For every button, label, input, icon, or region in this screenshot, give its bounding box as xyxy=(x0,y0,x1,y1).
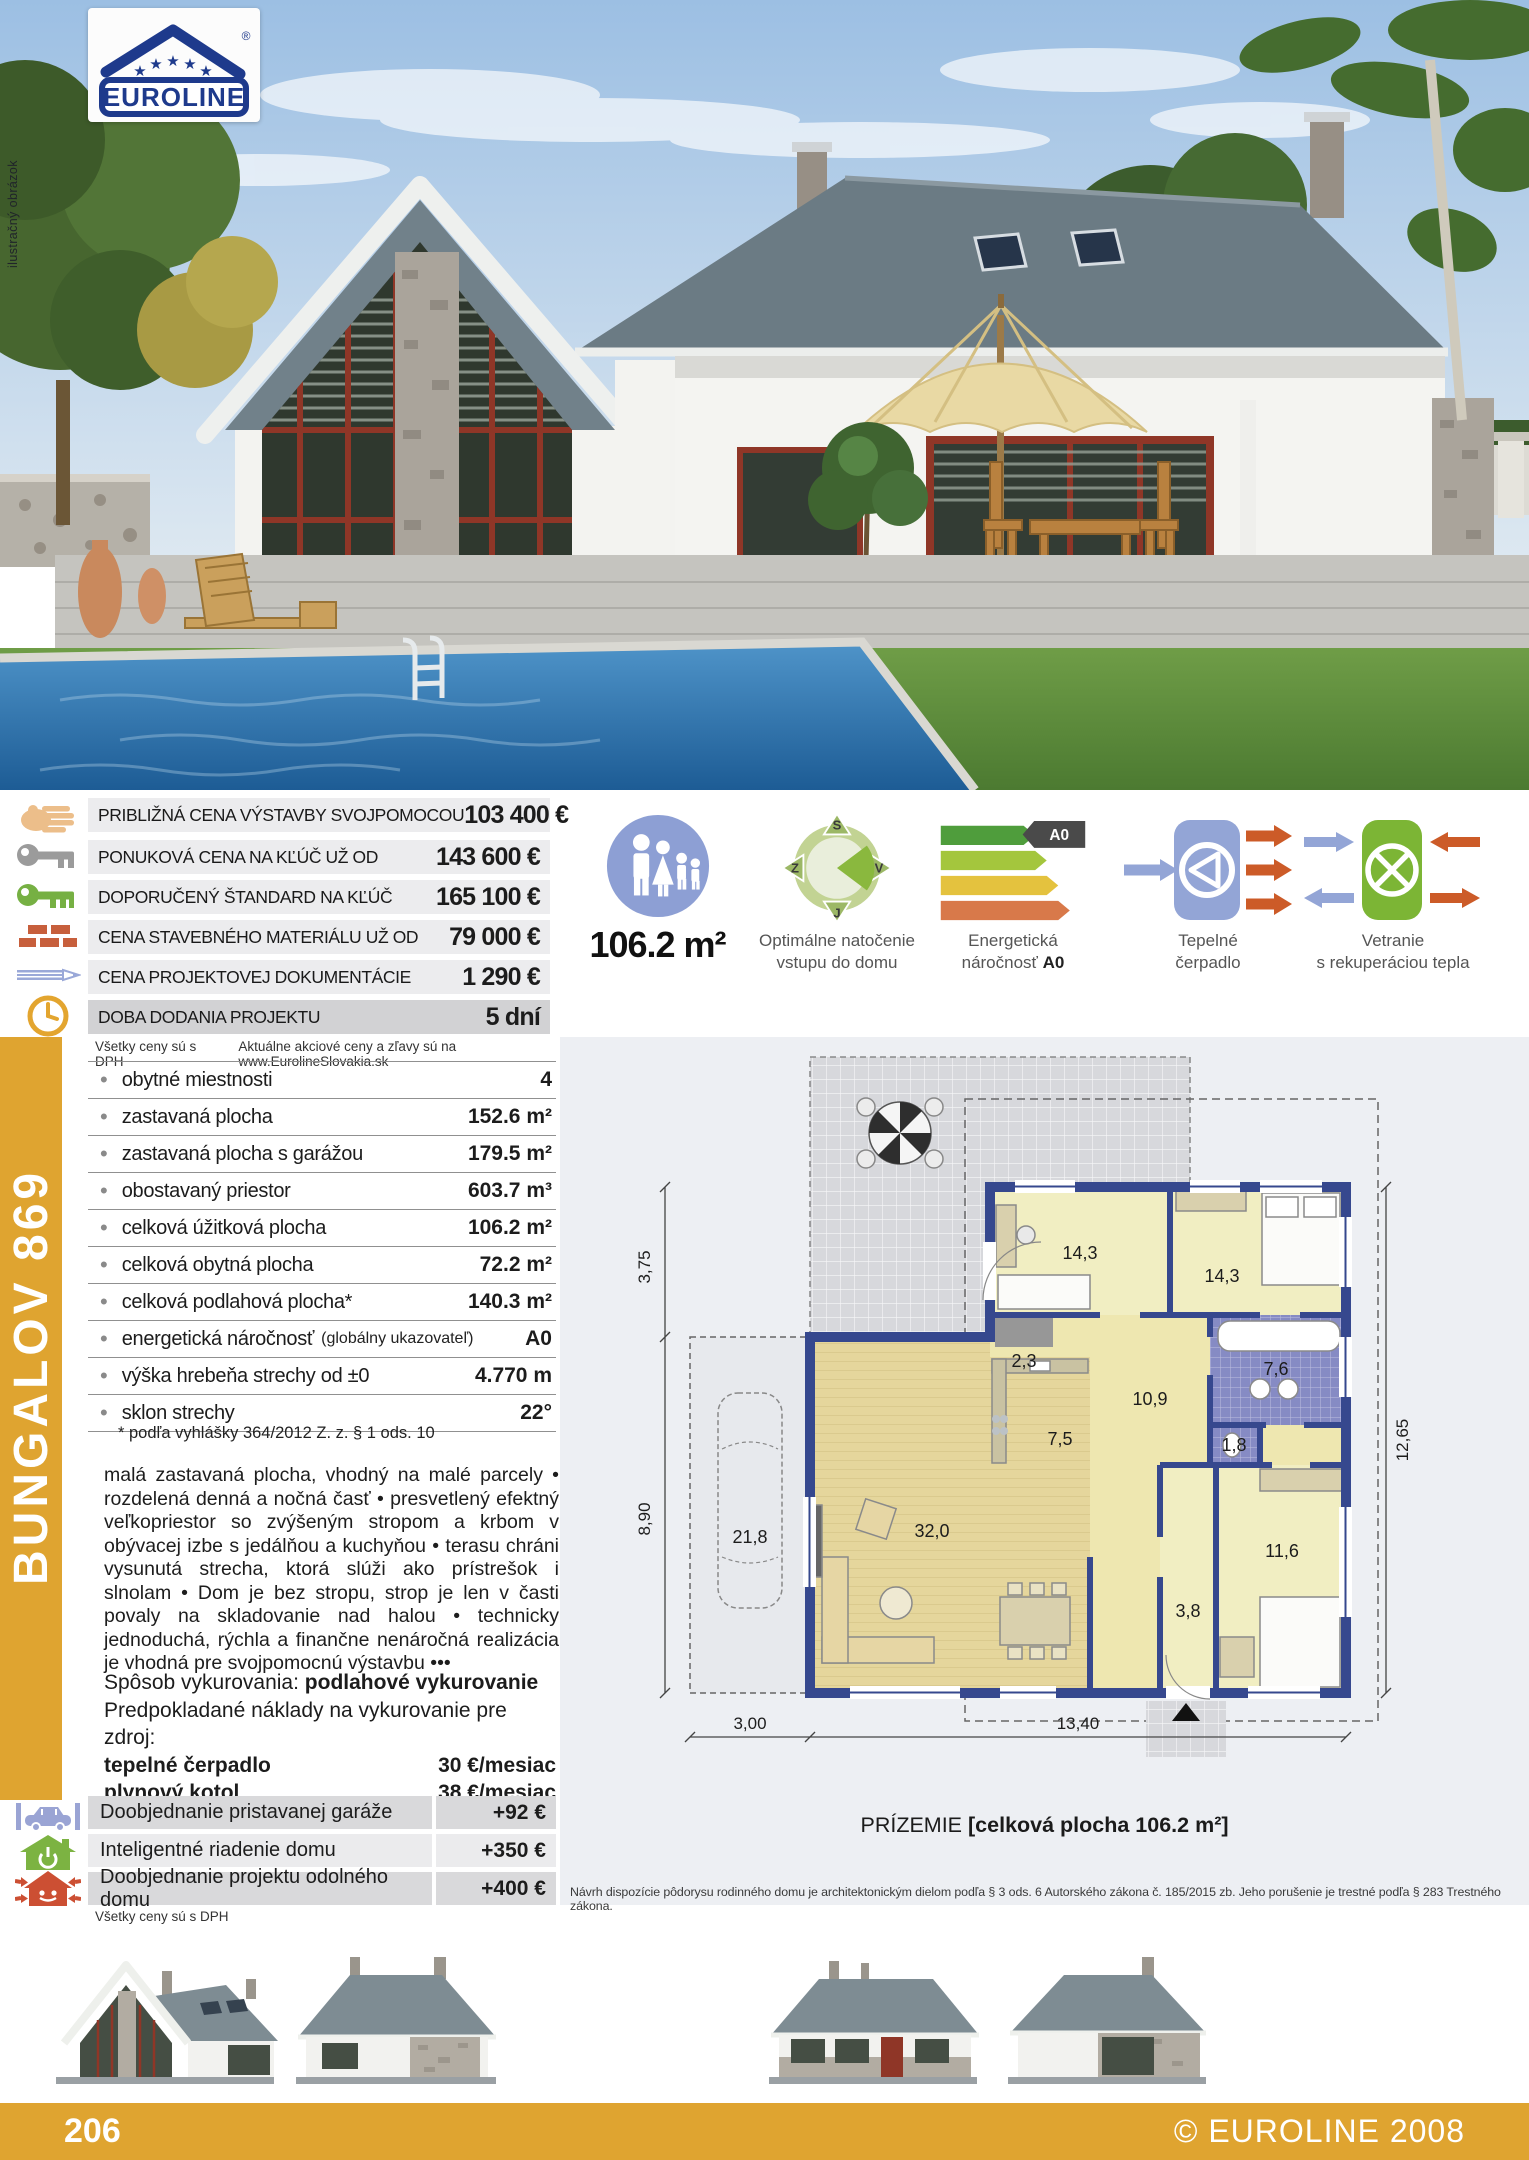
logo-registered-mark: ® xyxy=(242,29,251,43)
heatpump-label-2: čerpadlo xyxy=(1118,952,1298,974)
price-row: PONUKOVÁ CENA NA KĽÚČ UŽ OD 143 600 € xyxy=(88,840,550,874)
dim-bottom-left: 3,00 xyxy=(733,1714,766,1733)
price-label: CENA STAVEBNÉHO MATERIÁLU UŽ OD xyxy=(98,927,418,948)
dim-bottom-right: 13,40 xyxy=(1057,1714,1100,1733)
addon-label: Inteligentné riadenie domu xyxy=(88,1834,432,1867)
price-label: CENA PROJEKTOVEJ DOKUMENTÁCIE xyxy=(98,967,411,988)
energy-label-1: Energetická xyxy=(928,930,1098,952)
room-label: 7,5 xyxy=(1047,1429,1072,1449)
compass-s: J xyxy=(833,905,840,920)
caption-prefix: PRÍZEMIE xyxy=(860,1813,962,1837)
spec-label: zastavaná plocha s garážou xyxy=(122,1143,363,1166)
spec-value: 179.5 m² xyxy=(468,1142,556,1166)
spec-value: 4 xyxy=(540,1068,556,1092)
addon-note: Všetky ceny sú s DPH xyxy=(95,1909,229,1924)
room-label: 7,6 xyxy=(1263,1359,1288,1379)
heating-method: podlahové vykurovanie xyxy=(305,1671,538,1694)
addon-label: Doobjednanie pristavanej garáže xyxy=(88,1796,432,1829)
spec-row: •celková obytná plocha72.2 m² xyxy=(88,1247,556,1284)
logo-stars-icon: ★★★★★ xyxy=(133,53,212,80)
compass-icon: S V J Z xyxy=(781,812,893,924)
price-row-delivery: DOBA DODANIA PROJEKTU 5 dní xyxy=(88,1000,550,1034)
key-green-icon xyxy=(12,882,84,912)
spec-label: zastavaná plocha xyxy=(122,1106,273,1129)
copyright-disclaimer: Návrh dispozície pôdorysu rodinného domu… xyxy=(570,1885,1519,1913)
spec-value: 603.7 m³ xyxy=(468,1179,556,1203)
heating-block: Spôsob vykurovania: podlahové vykurovani… xyxy=(104,1669,556,1807)
price-value: 79 000 € xyxy=(449,923,540,952)
heating-prefix: Spôsob vykurovania: xyxy=(104,1671,299,1694)
family-icon xyxy=(604,812,712,920)
room-label: 10,9 xyxy=(1132,1389,1167,1409)
feature-area: 106.2 m² xyxy=(575,812,740,966)
pencil-icon xyxy=(12,963,84,987)
feature-ventilation: Vetranie s rekuperáciou tepla xyxy=(1298,820,1488,974)
floorplan-drawing: 3,75 8,90 12,65 3,00 13,40 14,3 14,3 2,3… xyxy=(560,1037,1529,1797)
heat-pump-icon xyxy=(1118,820,1298,924)
spec-value: 4.770 m xyxy=(475,1364,556,1388)
spec-label: sklon strechy xyxy=(122,1402,235,1425)
room-label: 32,0 xyxy=(914,1521,949,1541)
orientation-label-1: Optimálne natočenie xyxy=(752,930,922,952)
hand-icon xyxy=(12,799,84,833)
energy-label-class: A0 xyxy=(1043,953,1065,972)
spec-value: A0 xyxy=(525,1327,556,1351)
svg-text:★: ★ xyxy=(183,56,196,73)
spec-row: •celková úžitková plocha106.2 m² xyxy=(88,1210,556,1247)
spec-value: 152.6 m² xyxy=(468,1105,556,1129)
compass-n: S xyxy=(833,818,842,833)
addon-label: Doobjednanie projektu odolného domu xyxy=(88,1872,432,1905)
catalog-page: ★★★★★ ® EUROLINE ilustračný obrázok PRIB… xyxy=(0,0,1529,2160)
copyright: © EUROLINE 2008 xyxy=(1174,2113,1465,2150)
ventilation-label-2: s rekuperáciou tepla xyxy=(1298,952,1488,974)
price-label: DOPORUČENÝ ŠTANDARD NA KĽÚČ xyxy=(98,887,392,908)
price-value: 143 600 € xyxy=(436,843,540,872)
spec-row: •energetická náročnosť(globálny ukazovat… xyxy=(88,1321,556,1358)
addon-row: Inteligentné riadenie domu +350 € xyxy=(88,1834,556,1867)
caption-area: [celková plocha 106.2 m²] xyxy=(968,1813,1229,1837)
energy-class-icon: A0 xyxy=(937,820,1089,924)
price-label: PONUKOVÁ CENA NA KĽÚČ UŽ OD xyxy=(98,847,378,868)
room-label: 1,8 xyxy=(1221,1435,1246,1455)
spec-row: •zastavaná plocha s garážou179.5 m² xyxy=(88,1136,556,1173)
spec-label: celková úžitková plocha xyxy=(122,1217,326,1240)
euroline-logo: ★★★★★ ® EUROLINE xyxy=(88,8,260,122)
spec-row: •obostavaný priestor603.7 m³ xyxy=(88,1173,556,1210)
addon-row: Doobjednanie projektu odolného domu +400… xyxy=(88,1872,556,1905)
price-value: 5 dní xyxy=(486,1003,540,1032)
elevation-front xyxy=(50,1945,280,2095)
garage-car-icon xyxy=(12,1799,84,1833)
feature-energy: A0 Energetická náročnosť A0 xyxy=(928,820,1098,974)
spec-value: 22° xyxy=(520,1401,556,1425)
spec-label: celková podlahová plocha* xyxy=(122,1291,352,1314)
usable-area-value: 106.2 m² xyxy=(575,924,740,966)
elevation-rear xyxy=(292,1945,502,2095)
spec-label: výška hrebeňa strechy od ±0 xyxy=(122,1365,369,1388)
room-label: 14,3 xyxy=(1204,1266,1239,1286)
footer-bar: 206 © EUROLINE 2008 xyxy=(0,2103,1529,2160)
price-row: PRIBLIŽNÁ CENA VÝSTAVBY SVOJPOMOCOU 103 … xyxy=(88,798,550,832)
feature-heatpump: Tepelné čerpadlo xyxy=(1118,820,1298,974)
heat-recovery-icon xyxy=(1298,820,1488,924)
energy-label-2: náročnosť xyxy=(962,953,1038,972)
ventilation-label-1: Vetranie xyxy=(1298,930,1488,952)
room-label: 3,8 xyxy=(1175,1601,1200,1621)
heating-row: tepelné čerpadlo30 €/mesiac xyxy=(104,1752,556,1780)
price-value: 103 400 € xyxy=(464,801,568,830)
feature-orientation: S V J Z Optimálne natočenie vstupu do do… xyxy=(752,812,922,974)
spec-label: celková obytná plocha xyxy=(122,1254,314,1277)
floorplan-caption: PRÍZEMIE [celková plocha 106.2 m²] xyxy=(560,1813,1529,1838)
room-label: 21,8 xyxy=(732,1527,767,1547)
price-value: 1 290 € xyxy=(462,963,540,992)
spec-label: obytné miestnosti xyxy=(122,1069,273,1092)
spec-label: energetická náročnosť xyxy=(122,1328,314,1351)
spec-row: •výška hrebeňa strechy od ±04.770 m xyxy=(88,1358,556,1395)
elevation-side-entry xyxy=(765,1945,985,2095)
addon-price: +350 € xyxy=(436,1834,556,1867)
heating-intro: Predpokladané náklady na vykurovanie pre… xyxy=(104,1697,556,1752)
spec-value: 72.2 m² xyxy=(480,1253,556,1277)
svg-text:★: ★ xyxy=(166,53,179,70)
spec-list: •obytné miestnosti4 •zastavaná plocha152… xyxy=(88,1061,556,1432)
clock-icon xyxy=(12,994,84,1038)
spec-value: 140.3 m² xyxy=(468,1290,556,1314)
model-name: BUNGALOV 869 xyxy=(2,1085,62,1585)
addon-price: +400 € xyxy=(436,1872,556,1905)
resilient-house-icon xyxy=(12,1869,84,1907)
addon-price: +92 € xyxy=(436,1796,556,1829)
elevation-side-garage xyxy=(1002,1945,1214,2095)
page-number: 206 xyxy=(64,2112,121,2151)
spec-footnote: * podľa vyhlášky 364/2012 Z. z. § 1 ods.… xyxy=(118,1424,435,1443)
spec-value: 106.2 m² xyxy=(468,1216,556,1240)
dim-left-top: 3,75 xyxy=(635,1250,654,1283)
compass-e: V xyxy=(875,861,884,876)
spec-row: •zastavaná plocha152.6 m² xyxy=(88,1099,556,1136)
photo-watermark: ilustračný obrázok xyxy=(6,136,23,268)
key-gray-icon xyxy=(12,842,84,872)
house-photo: ★★★★★ ® EUROLINE ilustračný obrázok xyxy=(0,0,1529,790)
room-label: 2,3 xyxy=(1011,1351,1036,1371)
price-row: DOPORUČENÝ ŠTANDARD NA KĽÚČ 165 100 € xyxy=(88,880,550,914)
dim-left-bottom: 8,90 xyxy=(635,1502,654,1535)
spec-row: •celková podlahová plocha*140.3 m² xyxy=(88,1284,556,1321)
dim-right: 12,65 xyxy=(1393,1419,1412,1462)
addon-row: Doobjednanie pristavanej garáže +92 € xyxy=(88,1796,556,1829)
compass-w: Z xyxy=(791,861,799,876)
spec-label: obostavaný priestor xyxy=(122,1180,291,1203)
room-label: 14,3 xyxy=(1062,1243,1097,1263)
price-label: DOBA DODANIA PROJEKTU xyxy=(98,1007,320,1028)
description: malá zastavaná plocha, vhodný na malé pa… xyxy=(104,1464,559,1676)
price-row: CENA STAVEBNÉHO MATERIÁLU UŽ OD 79 000 € xyxy=(88,920,550,954)
price-row: CENA PROJEKTOVEJ DOKUMENTÁCIE 1 290 € xyxy=(88,960,550,994)
orientation-label-2: vstupu do domu xyxy=(752,952,922,974)
energy-badge: A0 xyxy=(1049,827,1069,844)
bricks-icon xyxy=(12,923,84,950)
logo-wordmark: EUROLINE xyxy=(103,82,245,112)
smart-home-icon xyxy=(12,1835,84,1871)
floorplan-panel: 3,75 8,90 12,65 3,00 13,40 14,3 14,3 2,3… xyxy=(560,1037,1529,1905)
price-label: PRIBLIŽNÁ CENA VÝSTAVBY SVOJPOMOCOU xyxy=(98,805,464,826)
spec-row: •obytné miestnosti4 xyxy=(88,1062,556,1099)
svg-text:★: ★ xyxy=(149,56,162,73)
heatpump-label-1: Tepelné xyxy=(1118,930,1298,952)
room-label: 11,6 xyxy=(1265,1541,1299,1561)
price-value: 165 100 € xyxy=(436,883,540,912)
